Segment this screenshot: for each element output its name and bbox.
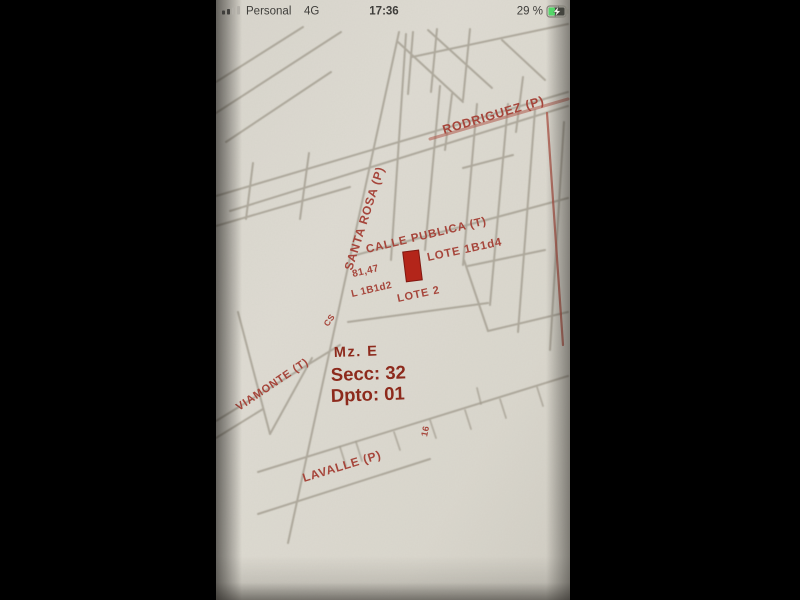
parcel-departamento-label: Dpto: 01 — [330, 382, 405, 406]
battery-charging-icon — [547, 6, 569, 17]
photo-viewer[interactable]: RODRIGUEZ (P) SANTA ROSA (P) CALLE PUBLI… — [216, 0, 570, 600]
parcel-seccion-label: Secc: 32 — [330, 361, 406, 385]
clock-label: 17:36 — [369, 6, 398, 18]
screen: RODRIGUEZ (P) SANTA ROSA (P) CALLE PUBLI… — [0, 0, 800, 600]
highlighted-lot-marker — [403, 250, 423, 282]
carrier-label: Personal — [246, 6, 291, 18]
vignette-bottom — [216, 556, 570, 600]
letterbox-right — [570, 0, 800, 600]
parcel-manzana-label: Mz. E — [334, 343, 379, 361]
letterbox-left — [0, 0, 216, 600]
vignette-left — [216, 0, 242, 600]
vignette-right — [546, 0, 570, 600]
battery-percent-label: 29 % — [517, 6, 543, 18]
status-bar: Personal 4G 17:36 29 % — [222, 6, 569, 18]
network-type-label: 4G — [304, 6, 319, 18]
map-photo: RODRIGUEZ (P) SANTA ROSA (P) CALLE PUBLI… — [216, 0, 570, 600]
